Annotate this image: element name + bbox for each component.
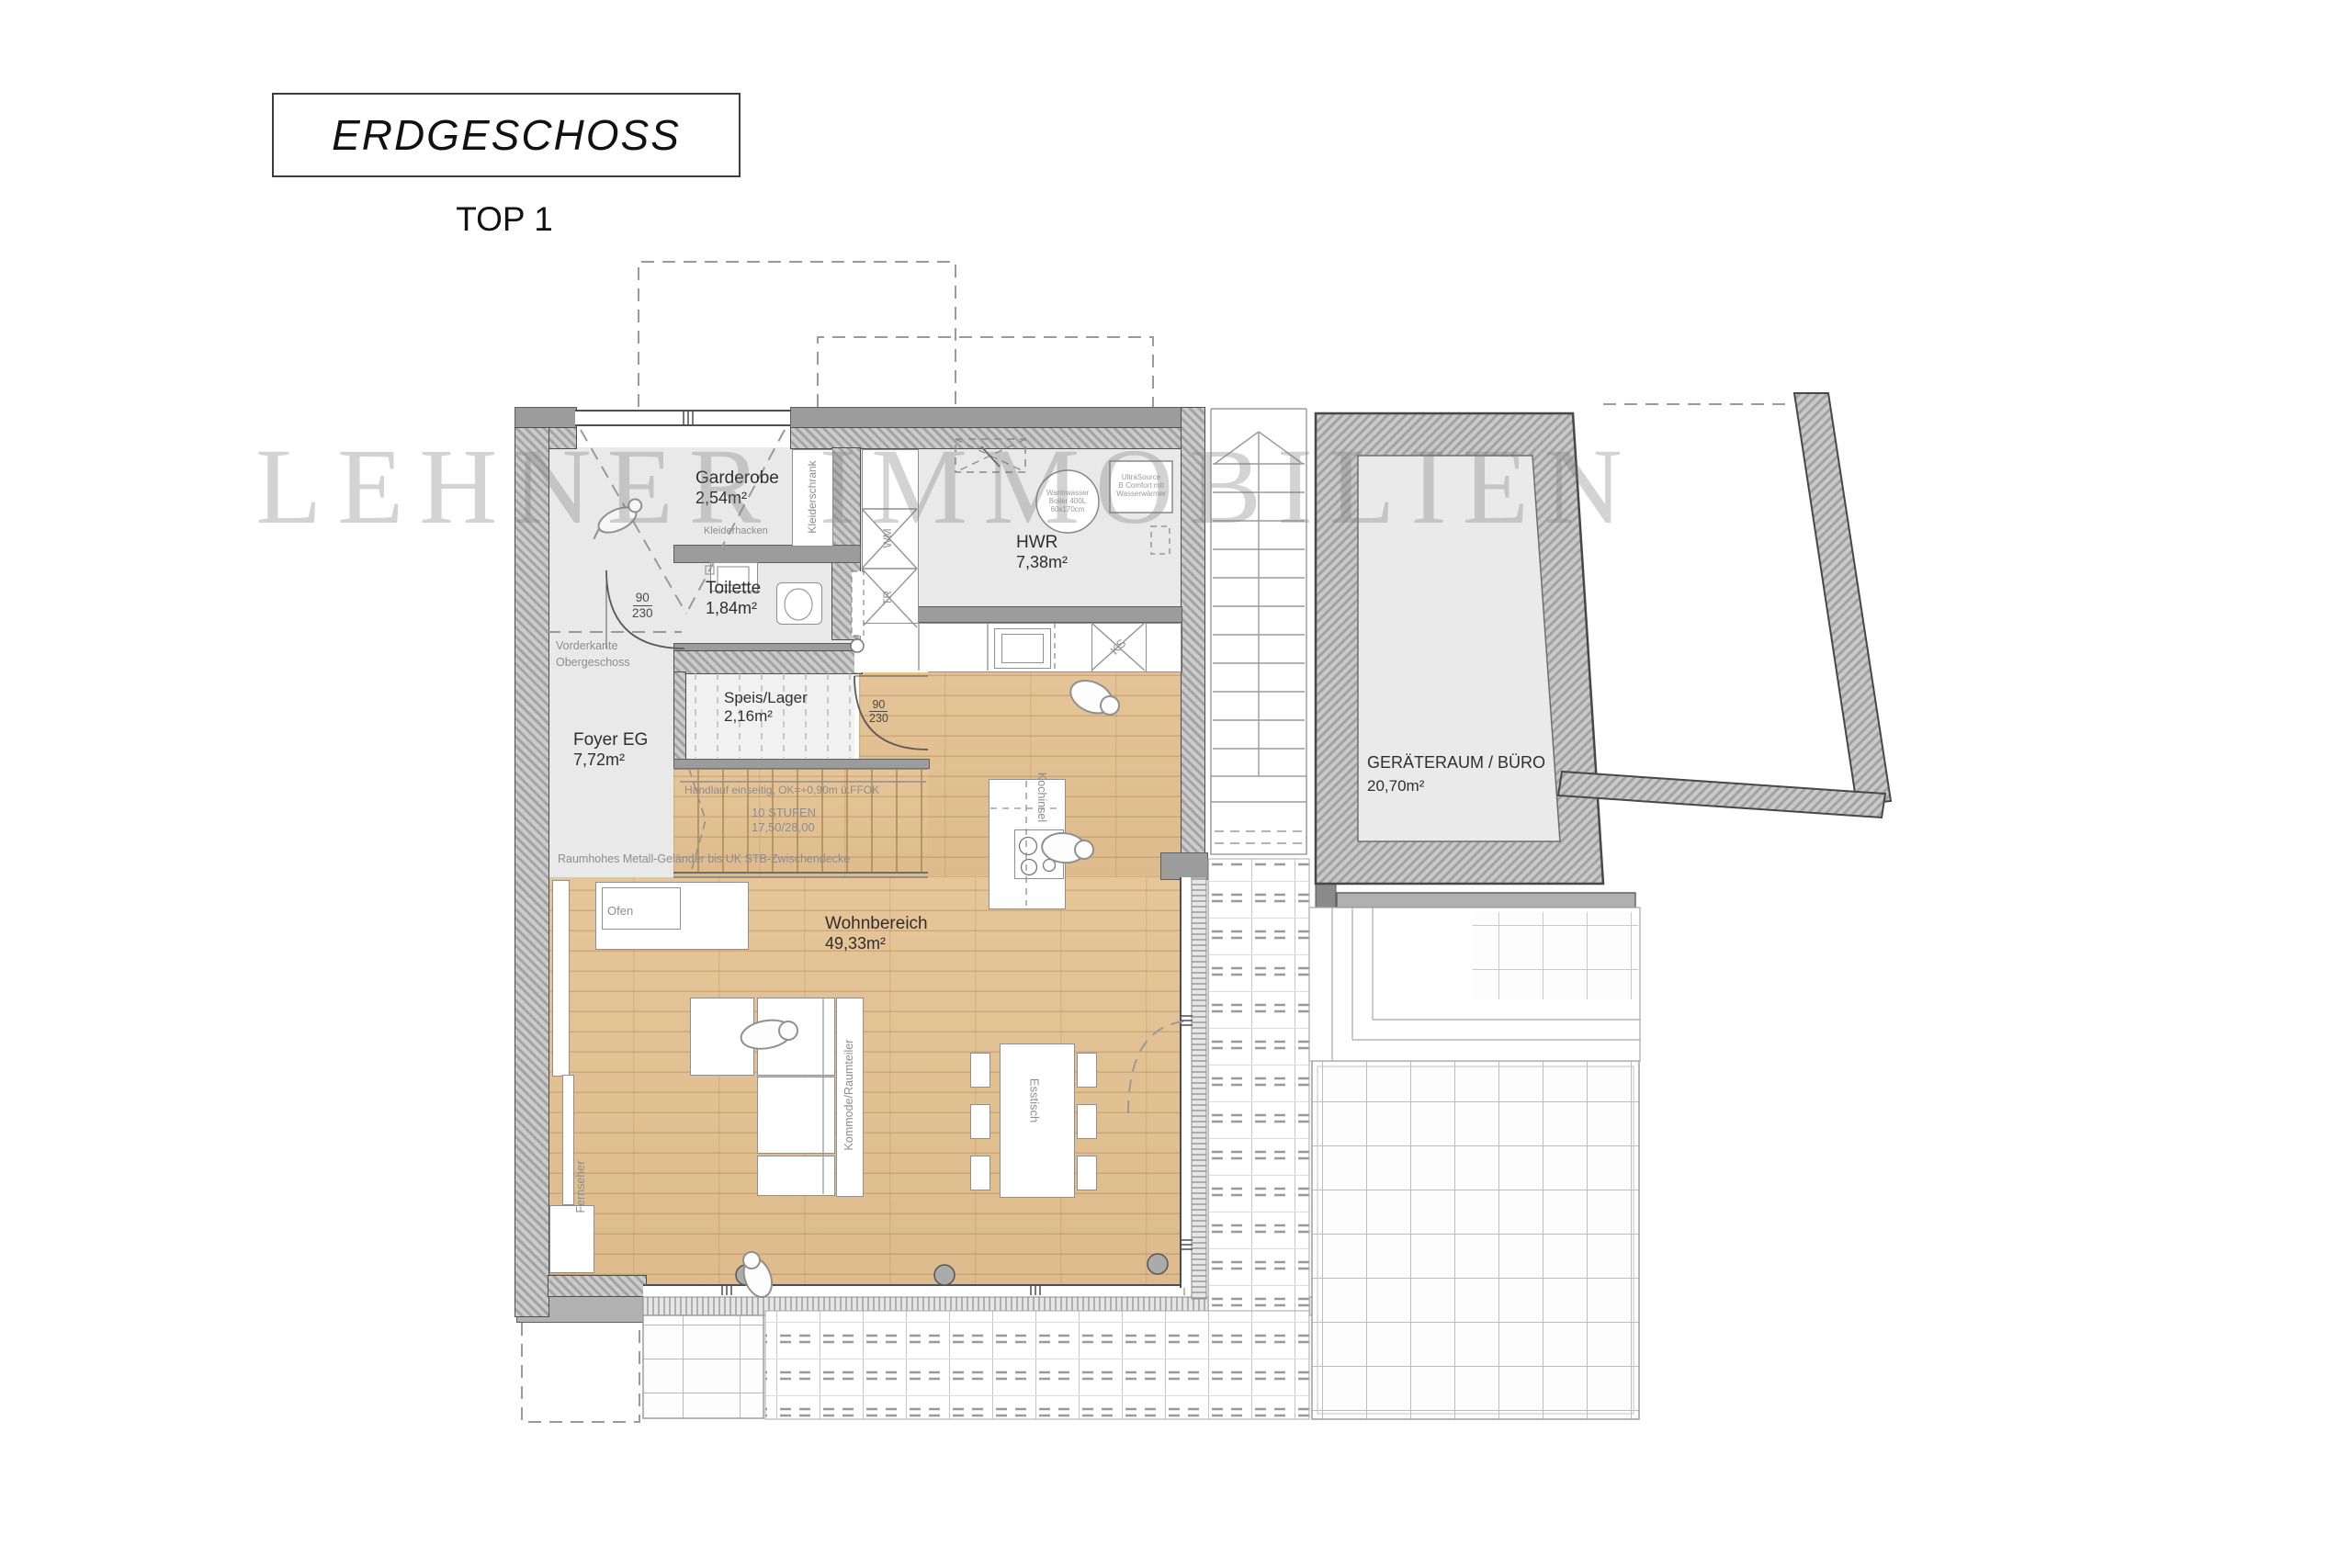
terrace-tiles-right-inner [1317,1066,1634,1414]
sofa-seat-2 [757,998,835,1076]
wall-right-corner-block [1160,852,1208,880]
room-label-speis: Speis/Lager [724,689,808,707]
room-area-speis: 2,16m² [724,707,773,726]
unit-label: TOP 1 [272,200,737,239]
plan-title-box: ERDGESCHOSS [272,93,741,177]
glass-facade-south [643,1284,1183,1299]
wall-top-left-solid [514,407,577,429]
room-area-foyer: 7,72m² [573,750,625,770]
plan-title: ERDGESCHOSS [332,110,681,160]
label-stufen-1: 10 STUFEN [752,806,816,819]
chair [1077,1104,1097,1139]
garden-steps-lines [1332,908,1640,1061]
terrace-tiles-right [1312,1061,1639,1419]
room-label-garderobe: Garderobe [695,468,779,489]
room-label-hwr: HWR [1016,533,1057,553]
label-gelaender: Raumhohes Metall-Geländer bis UK STB-Zwi… [558,852,850,865]
kitchen-oven-inner [1001,634,1044,663]
room-label-wohnbereich: Wohnbereich [825,914,928,934]
sofa-seat-3 [757,1077,835,1154]
label-vorderkante-2: Obergeschoss [556,656,630,669]
room-label-toilette: Toilette [706,579,761,599]
door-label-toilette: 90230 [632,591,653,620]
sofa-seat-4 [757,1156,835,1196]
courtyard-wall-east [1794,393,1891,805]
drain-strip-south [643,1297,1375,1315]
glass-facade-east [1180,877,1196,1288]
room-label-geraeteraum: GERÄTERAUM / BÜRO [1367,753,1545,773]
wall-left [514,427,549,1317]
wall-speis-bottom [673,759,930,769]
cooktop [1014,829,1064,879]
label-stufen-2: 17,50/28,00 [752,820,815,834]
label-kleiderhacken: Kleiderhacken [704,525,768,536]
floor-plan-canvas: ERDGESCHOSS TOP 1 [0,0,2352,1568]
sofa-seat-1 [690,998,754,1076]
chair [970,1104,990,1139]
chair [970,1053,990,1088]
paving-dashed-south [765,1311,1309,1419]
label-handlauf: Handlauf einseitig, OK=+0,90m ü.FFOK [684,784,879,796]
door-label-speis: 90230 [869,698,888,726]
retaining-block [1316,884,1336,908]
room-area-geraeteraum: 20,70m² [1367,777,1424,795]
label-wm: WM [881,528,894,547]
garden-steps-area [1309,908,1640,1061]
label-tr: TR [881,591,894,605]
label-ultrasource: UltraSourceB Comfort mitWasserwärmer [1111,473,1171,499]
paving-dashed-east [1208,859,1309,1311]
retaining-slab [1337,893,1635,908]
wall-speis-left [673,671,686,761]
entry-glass-door [575,410,790,426]
wall-bottom-left [548,1275,647,1297]
label-ofen: Ofen [607,904,633,918]
room-area-toilette: 1,84m² [706,599,757,618]
wall-speis-top [673,650,863,674]
terrace-tiles-left [643,1315,763,1418]
wall-garderobe-toilette [673,545,861,563]
wall-top-hatch [790,427,1182,449]
label-kleiderschrank: Kleiderschrank [806,460,819,533]
label-fernseher: Fernseher [574,1161,587,1213]
wall-top-solid [790,407,1205,429]
wall-shelf-strip [552,880,570,1077]
label-kochinsel: Kochinsel [1035,773,1048,822]
outbuilding-wall [1316,413,1603,884]
chair [1077,1053,1097,1088]
sideboard-box [549,1205,594,1273]
courtyard-wall-south [1558,772,1885,818]
room-area-wohnbereich: 49,33m² [825,934,886,953]
toilette-wc [776,582,822,625]
room-label-foyer: Foyer EG [573,730,648,750]
label-kommode: Kommode/Raumteiler [842,1040,855,1151]
room-area-garderobe: 2,54m² [695,489,747,508]
chair [1077,1156,1097,1190]
chair [970,1156,990,1190]
wall-right [1181,407,1205,881]
exterior-stair [1211,409,1306,854]
room-area-hwr: 7,38m² [1016,553,1068,572]
garden-steps-grid [1473,912,1638,999]
label-esstisch: Esstisch [1028,1078,1042,1122]
label-boiler: WarmwasserBoiler 400L60x170cm [1035,489,1100,514]
tv-board [562,1075,574,1205]
label-vorderkante-1: Vorderkante [556,639,617,652]
